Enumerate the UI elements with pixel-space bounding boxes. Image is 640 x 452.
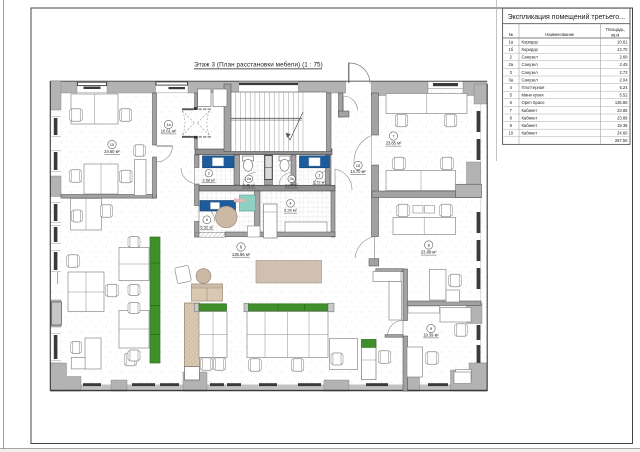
svg-text:Санузел: Санузел xyxy=(522,70,539,75)
svg-text:Площадь,: Площадь, xyxy=(606,27,625,32)
svg-text:23.89 м²: 23.89 м² xyxy=(421,250,437,255)
svg-text:23.89: 23.89 xyxy=(617,115,628,120)
svg-text:5: 5 xyxy=(206,217,208,222)
svg-text:Этаж 3 (План расстановки мебел: Этаж 3 (План расстановки мебели) (1 : 75… xyxy=(194,61,323,69)
svg-text:13.70 м²: 13.70 м² xyxy=(350,169,366,174)
svg-text:2.72: 2.72 xyxy=(619,70,628,75)
svg-text:№: № xyxy=(509,32,514,37)
svg-text:23.85 м²: 23.85 м² xyxy=(386,141,402,146)
svg-text:5.52 м²: 5.52 м² xyxy=(200,224,214,229)
svg-text:3: 3 xyxy=(318,174,320,178)
svg-text:Кабинет: Кабинет xyxy=(522,131,538,136)
svg-text:2.68 м²: 2.68 м² xyxy=(202,177,215,182)
svg-text:267.56: 267.56 xyxy=(615,138,628,143)
svg-text:10: 10 xyxy=(508,131,513,136)
svg-text:1б: 1б xyxy=(356,163,361,168)
svg-text:2а: 2а xyxy=(508,62,513,67)
svg-text:Коридор: Коридор xyxy=(522,47,539,52)
svg-text:Мини кухня: Мини кухня xyxy=(522,93,544,98)
svg-text:Кабинет: Кабинет xyxy=(522,115,538,120)
svg-text:2.68: 2.68 xyxy=(619,55,628,60)
svg-text:Плоттерная: Плоттерная xyxy=(522,85,545,90)
svg-text:10: 10 xyxy=(110,142,115,147)
svg-text:19.39: 19.39 xyxy=(617,123,628,128)
svg-text:5.24 м²: 5.24 м² xyxy=(284,208,298,213)
svg-text:136.86 м²: 136.86 м² xyxy=(232,252,251,257)
svg-text:2: 2 xyxy=(208,172,210,176)
svg-text:2.45 м²: 2.45 м² xyxy=(243,183,256,188)
svg-text:2.45: 2.45 xyxy=(619,62,628,67)
svg-text:5.52: 5.52 xyxy=(619,93,628,98)
svg-text:19.39 м²: 19.39 м² xyxy=(423,333,439,338)
svg-text:1б: 1б xyxy=(508,47,513,52)
svg-text:1а: 1а xyxy=(166,122,171,127)
svg-text:136.86: 136.86 xyxy=(615,100,628,105)
svg-text:13.70: 13.70 xyxy=(617,47,628,52)
svg-text:Open Space: Open Space xyxy=(522,100,546,105)
svg-text:Санузел: Санузел xyxy=(522,62,539,67)
svg-text:5.24: 5.24 xyxy=(619,85,628,90)
svg-text:Кабинет: Кабинет xyxy=(522,108,538,113)
svg-text:Санузел: Санузел xyxy=(522,77,539,82)
svg-text:Наименование: Наименование xyxy=(545,32,575,37)
svg-text:24.60: 24.60 xyxy=(617,131,628,136)
svg-text:24.60 м²: 24.60 м² xyxy=(104,149,120,154)
svg-text:10.61: 10.61 xyxy=(617,39,628,44)
svg-text:23.85: 23.85 xyxy=(617,108,628,113)
svg-text:Кабинет: Кабинет xyxy=(522,123,538,128)
svg-text:1а: 1а xyxy=(508,39,513,44)
svg-text:10.61 м²: 10.61 м² xyxy=(161,129,177,134)
svg-text:кв.м: кв.м xyxy=(611,33,619,38)
svg-text:Санузел: Санузел xyxy=(522,55,539,60)
svg-text:2.04 м²: 2.04 м² xyxy=(285,183,298,188)
svg-text:2.04: 2.04 xyxy=(619,77,628,82)
svg-text:2.72 м²: 2.72 м² xyxy=(313,179,326,184)
svg-text:Экспликация помещений третьего: Экспликация помещений третьего... xyxy=(508,13,626,21)
svg-text:Коридор: Коридор xyxy=(522,39,539,44)
svg-text:3а: 3а xyxy=(508,77,513,82)
